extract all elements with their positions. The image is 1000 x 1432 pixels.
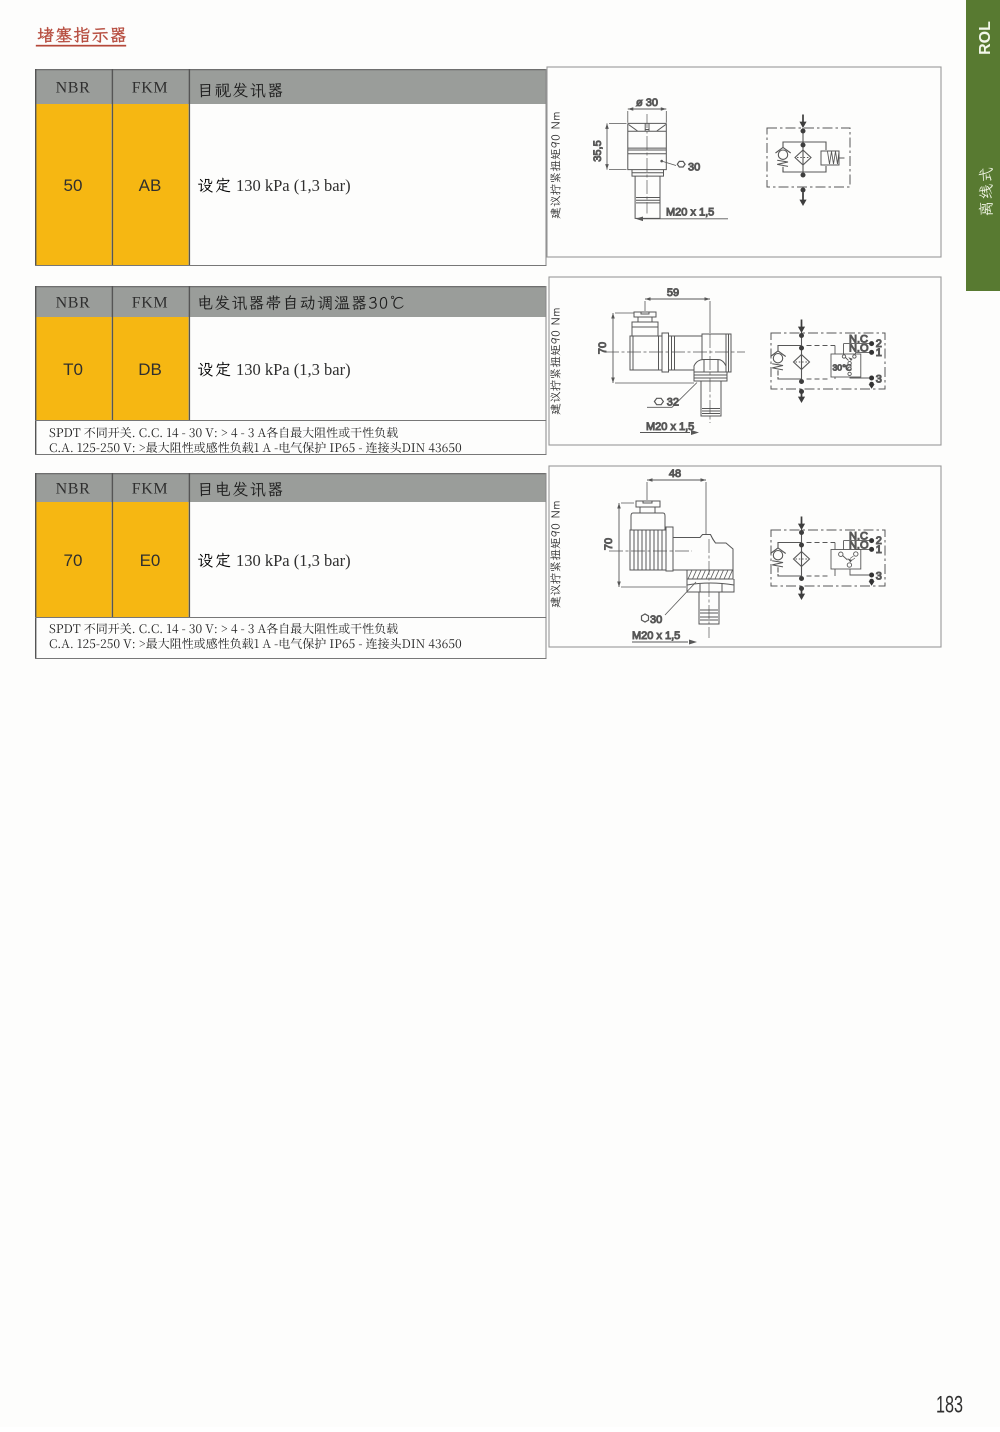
svg-text:130 kPa (1,3 bar): 130 kPa (1,3 bar) bbox=[236, 360, 351, 379]
svg-text:FKM: FKM bbox=[132, 481, 168, 498]
svg-text:DB: DB bbox=[138, 360, 162, 379]
svg-text:35,5: 35,5 bbox=[592, 140, 604, 161]
svg-text:183: 183 bbox=[936, 1392, 963, 1419]
svg-text:E0: E0 bbox=[140, 551, 161, 570]
svg-text:ROL: ROL bbox=[977, 21, 994, 55]
svg-text:NBR: NBR bbox=[56, 295, 91, 312]
svg-text:M20 x 1,5: M20 x 1,5 bbox=[646, 421, 694, 433]
svg-text:M20 x 1,5: M20 x 1,5 bbox=[666, 207, 714, 219]
svg-text:FKM: FKM bbox=[132, 80, 168, 97]
svg-text:30: 30 bbox=[650, 614, 662, 626]
svg-text:N.O: N.O bbox=[849, 343, 869, 355]
svg-text:59: 59 bbox=[667, 287, 679, 299]
svg-text:N.O: N.O bbox=[849, 540, 869, 552]
svg-text:3: 3 bbox=[876, 374, 882, 386]
svg-text:NBR: NBR bbox=[56, 481, 91, 498]
svg-text:130 kPa (1,3 bar): 130 kPa (1,3 bar) bbox=[236, 551, 351, 570]
svg-text:M20 x 1,5: M20 x 1,5 bbox=[632, 630, 680, 642]
svg-text:70: 70 bbox=[603, 538, 615, 550]
svg-text:30: 30 bbox=[688, 162, 700, 174]
svg-text:FKM: FKM bbox=[132, 295, 168, 312]
svg-text:48: 48 bbox=[669, 468, 681, 480]
svg-text:1: 1 bbox=[876, 544, 882, 556]
svg-text:AB: AB bbox=[139, 176, 162, 195]
svg-text:130 kPa (1,3 bar): 130 kPa (1,3 bar) bbox=[236, 176, 351, 195]
svg-text:70: 70 bbox=[64, 551, 83, 570]
svg-text:3: 3 bbox=[876, 571, 882, 583]
svg-text:1: 1 bbox=[876, 347, 882, 359]
svg-text:T0: T0 bbox=[63, 360, 83, 379]
svg-text:NBR: NBR bbox=[56, 80, 91, 97]
svg-text:ø 30: ø 30 bbox=[636, 97, 658, 109]
svg-text:50: 50 bbox=[64, 176, 83, 195]
